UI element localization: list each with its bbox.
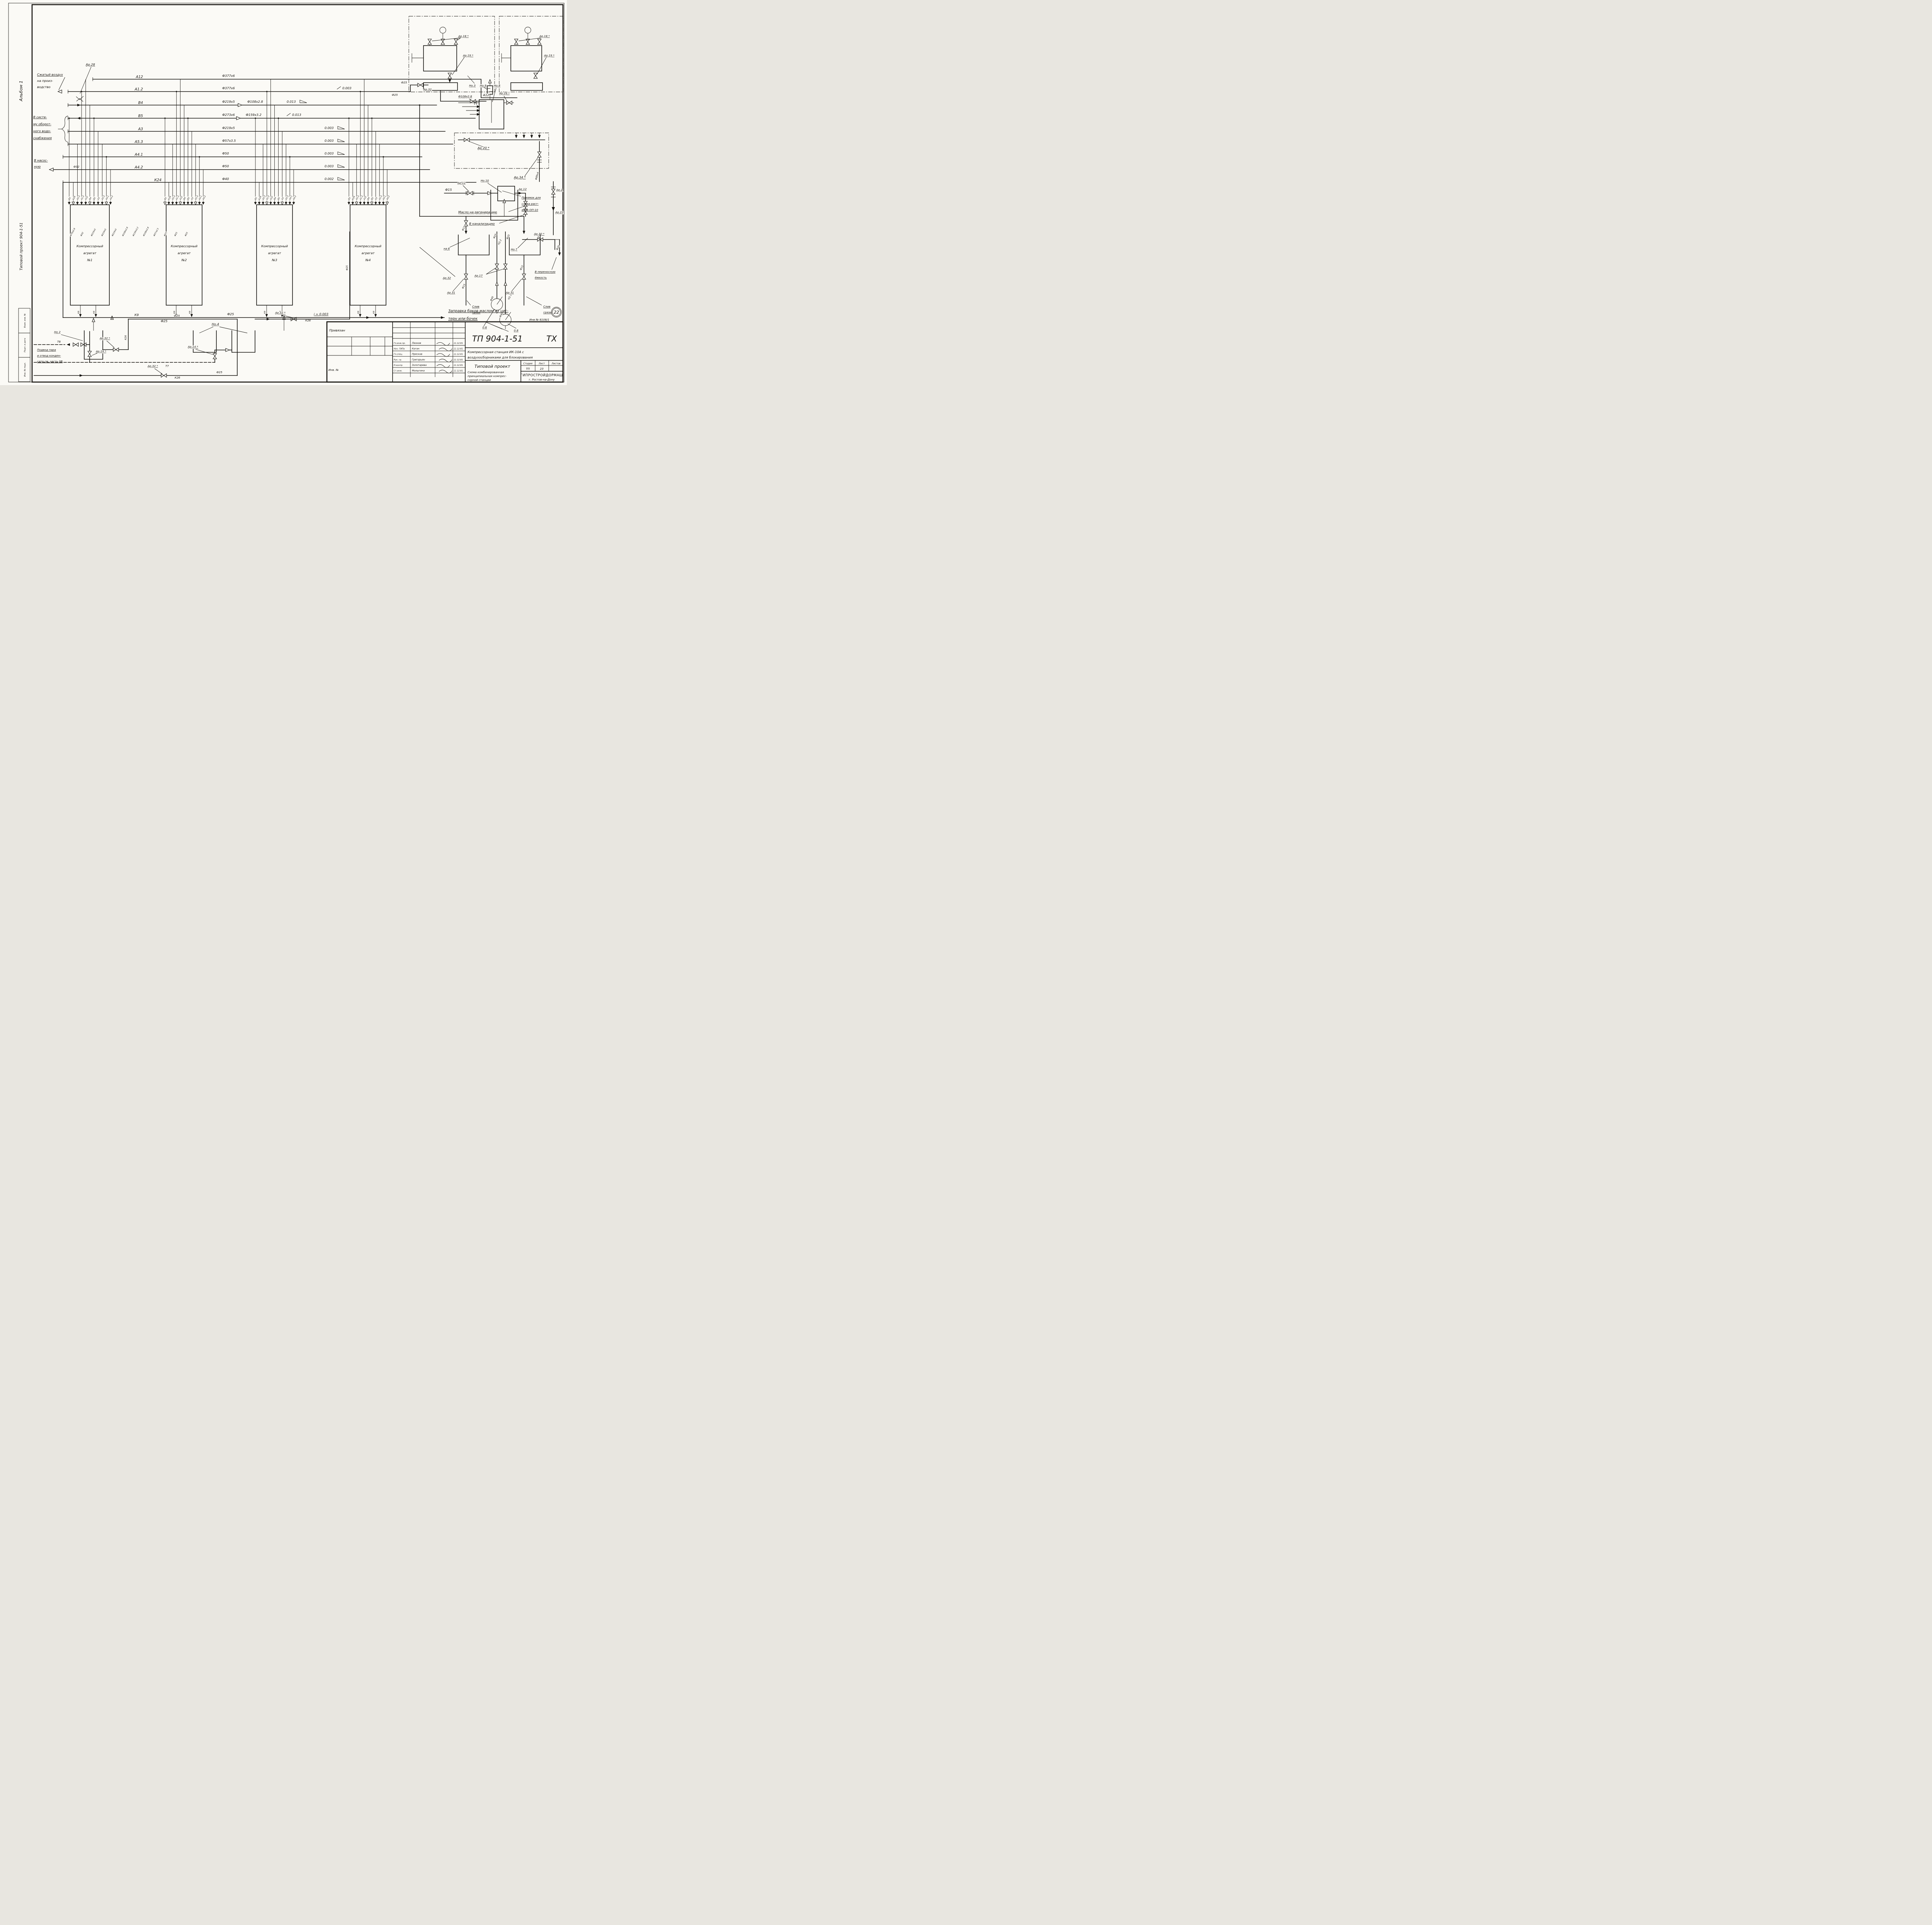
ar12b-label: Ар 12 [518,187,527,191]
flow-arrow [277,202,280,205]
pipe-dia: Ф50 [222,164,229,168]
k9-stub-label: К9 [93,311,95,314]
margin-stamp-label: Инв. № подл. [24,362,26,377]
detail-box-1: Ар.18 * Ар.19 * [409,16,495,103]
flow-arrow [190,314,193,317]
ar32-label: Ар.32 * [147,364,158,368]
flow-arrow-open [194,202,197,205]
drop-dia-label: Ф25 [184,231,189,236]
k9-label: К9 [134,313,139,317]
flow-arrow [378,202,381,205]
pipe-junction-dot [199,156,200,157]
ar19-label: Ар.19 * [463,54,473,57]
drop-tag-label: В5 [348,197,351,200]
k9-stub-label: К9 [264,311,266,314]
privyazan-label: Привязан [329,328,345,332]
signature-scribble [437,342,450,345]
flow-arrow [285,202,287,205]
pump-label: В насос- ную [34,158,49,168]
flow-arrow [79,314,82,317]
drop-dia-label: Ф76х2.8 [70,228,76,237]
drop-dia-label: Ф108х2.8 [143,226,150,237]
scheme-label: Схема комбинированная принципиальная ком… [468,370,507,382]
flow-arrow [281,314,283,317]
compressor-label: агрегат [83,251,97,255]
pipe-mid-dia: Ф159х3.2 [246,113,262,117]
drop-tag-label: А1.2 [266,195,270,201]
oil-level: 0.8 [483,326,487,329]
drop-tag-label: А3 [374,197,378,200]
drop-tag-label: А4.2 [386,195,391,201]
drop-tag-label: В4 [183,197,187,200]
sig-name: Коган [412,347,419,350]
sig-name: Леонов [412,342,421,345]
title-block: Привязан Инв. № Гл.инж.пр.Леонов11.12.81… [327,322,563,382]
drop-tag-label: К24 [72,195,77,200]
drop-tag-label: В5 [371,197,374,200]
margin-stamp-label: Взам. инв. № [24,313,26,328]
sig-name: Пресков [412,353,422,356]
flow-arrow [363,202,366,205]
f15-vert: Ф15 [461,226,466,231]
f25-vert: Ф25 [346,265,349,270]
flow-arrow [97,202,100,205]
compressor-label: Компрессорный [171,244,198,248]
ar32-label: Ар.32 [423,88,432,91]
ar14-label: Ар.14 * [187,345,198,348]
pipe-junction-dot [106,156,107,157]
oil-level: 0.8 [514,329,519,332]
k26-label: К26 [124,335,127,340]
n21-vert: Н2.1 [507,294,512,300]
reducer-symbol [76,96,83,102]
no7-label: Но.7 [511,248,517,251]
sheet-frame [9,3,564,382]
sig-date: 11.12.81 [454,370,463,372]
drop-tag-label: А4.2 [202,195,207,201]
org-city: г. Ростов-на-Дону [529,378,555,381]
pipe-tag: В4 [138,101,143,105]
compressor-label: №3 [272,258,277,262]
pipe-tag: В5 [138,114,143,118]
sig-role: Ст.инж. [394,370,402,372]
drop-dia-label: Ф219х5 [111,228,117,237]
type-label: Типовой проект [474,364,510,369]
flow-arrow [68,202,71,205]
sliv-label: Слив грязи [543,305,551,314]
drop-dia-label: Ф57х2.5 [153,228,159,237]
sheet-badge: 22 [554,310,559,315]
drop-tag-label: А1.2 [175,195,180,201]
water-label: В систе- му оборот- ного водо- снабжения [33,115,52,140]
flow-arrow [168,202,170,205]
flow-arrow [202,202,205,205]
drop-tag-label: А5.3 [101,195,106,201]
compressor-label: агрегат [268,251,281,255]
flow-arrow [76,202,79,205]
drop-dia-label: Ф32 [80,231,84,236]
ar19-label: Ар.19 * [544,54,554,57]
drop-tag-label: В5 [93,197,97,200]
flow-arrow [101,202,104,205]
ar34-label: Ар.34 * [514,175,526,179]
flow-arrow [171,202,174,205]
drawing-sheet: Альбом 1 Типовой проект 904-1-51 Взам. и… [0,0,567,385]
f32-label: Ф32 [73,165,80,168]
signature-scribble [439,348,452,351]
flow-arrow-open [371,202,373,205]
pipe-junction-dot [266,91,267,92]
pipe-tag: А4.1 [134,153,143,157]
drop-tag-label: А4.2 [109,195,114,201]
drop-tag-label: В5 [164,197,167,200]
drop-tag-label: А12 [270,195,274,201]
flow-arrow [359,314,361,317]
flow-arrow [273,202,276,205]
pipe-tag: А5.3 [134,140,143,144]
brace [61,116,68,142]
inv-cell-label: Инв. № [328,368,338,372]
flow-arrow [95,314,97,317]
flow-arrow-open [281,202,284,205]
flow-arrow [175,202,178,205]
na6-label: на 6 [444,247,450,250]
flow-arrow-open [179,202,182,205]
drop-tag-label: А3 [190,197,194,200]
drop-tag-label: А12 [179,195,184,201]
steam-note: Подвод пара и отвод конден- сата см. час… [37,348,63,363]
ar14-label: Ар.14 * [95,350,106,353]
sig-date: 11.12.81 [454,364,463,367]
compressor-label: №2 [181,258,187,262]
pipe-junction-dot [255,117,256,119]
project-code: ТП 904-1-51 [472,334,523,343]
ar17-label: Ар.17 [474,274,483,277]
flow-arrow-open [72,202,75,205]
stage-header: Листов [551,362,560,365]
drop-tag-label: А1.2 [80,195,85,201]
margin-stamp-label: Подп. и дата [24,338,26,352]
k9-stub-label: К9 [373,311,375,314]
drop-dia-label: Ф219х5 [90,228,97,237]
flow-arrow [289,202,291,205]
flow-arrow [80,202,83,205]
sig-role: Рук. гр. [394,359,402,361]
project-label: Типовой проект 904-1-51 [19,223,24,270]
f25-label: Ф25 [174,314,180,318]
sig-date: 11.12.81 [454,353,463,356]
f25-label: Ф25 [216,370,223,374]
drop-tag-label: В4 [367,197,371,200]
f15-vert: Ф15 [519,265,524,271]
pipe-mid-dia: Ф108х2.8 [247,100,263,104]
subject: Компрессорная станция ИК-10А с воздухосб… [468,350,533,359]
sig-name: Малыгина [412,370,425,372]
sig-name: Золотарева [412,364,427,367]
flow-arrow [84,202,87,205]
drop-diameter-labels: Ф76х2.8Ф32Ф219х5Ф219х5Ф219х5Ф108х2.8Ф159… [70,226,189,237]
flow-arrow [352,202,354,205]
ar32-mid-label: Ар.32 [442,276,451,280]
slope-marks: 0.003 0.013 0.013 0.003 0.003 0.003 0.00… [287,86,351,181]
drop-tag-label: А4.1 [105,195,110,201]
ar2-label: Ар.2 [556,188,563,192]
sig-role: Нач. ГИПа [394,348,405,350]
flow-arrow-open [355,202,358,205]
compressor-label: агрегат [362,251,375,255]
ar18-label: Ар.18 * [458,34,469,38]
flow-arrow [187,202,189,205]
pipe-tag: А3 [138,127,143,131]
kanal-label: В канализацию [469,222,495,226]
compressor-label: №1 [87,258,93,262]
pipe-junction-dot [360,91,361,92]
ar32-label: Ар.32 * [99,336,110,340]
drop-tag-label: В4 [274,197,277,200]
flow-arrow [374,202,377,205]
pipe-junction-dot [278,117,279,119]
pipe-junction-dot [383,156,384,157]
flow-arrow [262,202,264,205]
flow-arrow [93,202,95,205]
drop-tag-label: В4 [89,197,92,200]
right-bottom-zone: Ф15 Ар.32 на 6 Но.7 Ар.31 Ф15 Слив грязи… [419,104,561,332]
no4-label: Но.4 [212,322,219,326]
f89-label: Ф89х4 [535,172,539,180]
drop-dia-label: Ф159х3.2 [132,226,139,237]
a12-tag: А12 [483,93,489,97]
ar18-label: Ар.18 * [539,34,550,38]
flow-arrow [367,202,369,205]
pipe-junction-dot [68,117,70,119]
drop-tag-label: А3 [281,197,284,200]
stage-header: Лист [538,362,545,365]
flow-arrow [109,202,112,205]
f15-vert: Ф15 [461,284,466,289]
drop-tag-label: А5.3 [355,195,360,201]
emkost-label: В переносную ёмкость [535,270,556,279]
t7-label: Т7 [165,364,169,368]
drop-tag-label: А12 [363,195,367,201]
pipe-dia: Ф377х6 [222,74,235,78]
drop-tag-label: А5.3 [285,195,289,201]
ar30-label: Ар.30 * [534,232,544,236]
signature-scribble [437,365,450,368]
bottom-left-zone: Подвод пара и отвод конден- сата см. час… [34,232,350,379]
f25-label: Ф25 [161,319,167,323]
pipe-junction-dot [176,91,177,92]
f15-label: Ф15 [445,188,452,192]
drop-tag-label: А4.2 [293,195,297,201]
pipe-junction-dot [187,117,189,119]
drop-tag-label: К24 [168,195,172,200]
flow-arrow-open [386,202,389,205]
drop-tag-label: А5.3 [172,195,176,201]
detail-box-2: Ар.18 * Ар.19 * [499,16,563,92]
drop-tag-label: А5.3 [76,195,81,201]
compressor-label: Компрессорный [355,244,382,248]
compressor-label: Компрессорный [261,244,288,248]
k9-stub-label: К9 [173,311,176,314]
signature-scribble [439,370,452,373]
flow-arrow [374,314,377,317]
pipe-tag: К24 [154,178,162,182]
drop-tag-label: К24 [352,195,356,200]
drop-tag-label: А5.3 [262,195,267,201]
drop-tag-label: А12 [85,195,89,201]
schematic-canvas: Альбом 1 Типовой проект 904-1-51 Взам. и… [0,0,567,385]
oil-separator-zone: Но.3 Но.9 Но.8 Ар.29 * Ф108х2.8 А12 Ф25 … [392,76,563,250]
drop-dia-label: Ф25 [174,231,178,236]
stage-header: Стадия [523,362,532,365]
flow-arrow [269,202,272,205]
no8-label: Но.8 [494,84,500,87]
pipe-dia: Ф57х3.5 [222,139,236,143]
pipe-junction-dot [94,117,95,119]
f25-vert: Ф25 [506,234,510,240]
svg-text:0.013: 0.013 [287,100,296,104]
ar29-label: Ар.29 * [499,92,510,95]
pipe-dia: Ф377х6 [222,86,235,90]
flow-arrow [190,202,193,205]
no3-label: Но.3 [469,84,476,87]
f25-label: Ф25 [227,312,234,316]
compressor-units: Компрессорныйагрегат№1Компрессорныйагрег… [70,205,386,305]
flow-arrow [265,314,268,317]
svg-text:0.003: 0.003 [325,164,333,168]
ar12-label: Ар.12 [457,181,466,185]
pipe-dia: Ф50 [222,151,229,155]
sig-role: Гл.инж.пр. [394,342,405,345]
flow-arrow [348,202,350,205]
signature-scribble [439,359,452,362]
k9-stub-label: К9 [78,311,80,314]
no9-label: Но.9 [480,84,486,87]
no10-label: Но.10 [481,179,489,182]
pipe-dia: Ф273х6 [222,113,235,117]
compressor-label: №4 [365,258,371,262]
album-label: Альбом 1 [19,81,24,102]
sig-role: Гл.спец. [394,353,403,356]
pipe-junction-dot [348,117,349,119]
flow-arrow [198,202,201,205]
drop-tag-label: А4.1 [289,195,293,201]
margin-column: Альбом 1 Типовой проект 904-1-51 Взам. и… [19,81,30,382]
sig-date: 11.12.81 [454,342,463,345]
f40-vert: Ф40 [490,296,494,302]
sig-date: 11.12.81 [454,348,463,350]
signature-scribble [437,353,450,357]
sig-date: 11.12.81 [454,359,463,361]
svg-text:0.013: 0.013 [292,113,301,117]
doc-code: ТХ [546,334,557,343]
f25-label: Ф25 [392,93,398,97]
flow-arrow [359,202,362,205]
pipe-dia: Ф219х5 [222,100,235,104]
pipe-junction-dot [371,117,372,119]
flow-arrow [183,202,185,205]
pipe-junction-dot [164,117,165,119]
drop-tag-label: К24 [258,195,262,200]
sig-role: Н.контр. [394,364,403,367]
drop-tag-label: А3 [97,197,100,200]
drop-dia-label: Ф25 [163,231,168,236]
svg-text:0.002: 0.002 [325,177,333,181]
k9-stub-label: К9 [357,311,360,314]
stage-value: 23 [540,367,544,370]
pipe-tag: А4.2 [134,165,143,170]
maslo-label: Масло на регенерацию [458,210,497,214]
pipe-dia: Ф40 [222,177,229,181]
drop-tag-label: А5.3 [194,195,199,201]
pipe-tag: А1.2 [134,87,143,92]
org-name: ГИПРОСТРОЙДОРМАШ [520,373,563,377]
drop-tag-label: А4.1 [198,195,203,201]
pipe-dia: Ф219х5 [222,126,235,130]
f25-label: Ф25 [401,81,407,84]
k9-stub-label: К9 [189,311,191,314]
flow-arrow [293,202,295,205]
t8-label: Т8 [57,340,61,343]
svg-text:0.003: 0.003 [325,126,333,130]
no2-label: Но 2 [54,330,61,334]
n22-vert: Н2.2 [497,239,502,245]
pipe-junction-dot [289,156,290,157]
drop-tag-label: А4.1 [382,195,387,201]
drop-tag-label: В5 [277,197,281,200]
drop-tag-label: В5 [254,197,258,200]
pipe-junction-dot [81,91,82,92]
air-label: Сжатый воздух на произ- водство [37,73,64,89]
drop-tag-label: А1.2 [359,195,364,201]
inv-note: Инв № 8108/1 [529,318,549,321]
stage-value: ТП [526,367,530,370]
compressor-label: агрегат [178,251,191,255]
flow-arrow [382,202,385,205]
pipe-tag: А12 [136,75,143,79]
flow-arrow-open [265,202,268,205]
flow-arrow-open [105,202,108,205]
compressor-label: Компрессорный [77,244,104,248]
ar21-label: Ар.21 [555,211,563,214]
drop-tag-label: В5 [68,197,71,200]
svg-text:0.003: 0.003 [325,151,333,155]
flow-arrow-open [88,202,91,205]
pit-label: Приямок для слива раст- вора ОП-10 [522,196,542,212]
k26-label: К26 [175,376,180,379]
svg-text:0.003: 0.003 [342,86,351,90]
drop-tag-label: В5 [187,197,190,200]
ar28-label: Ар.28 [85,63,95,66]
slope-label: i = 0.003 [314,312,328,316]
svg-text:0.003: 0.003 [325,139,333,143]
ar31-label: Ар.31 [447,291,455,294]
flow-arrow [258,202,261,205]
ar20-label: Ар 20 * [477,146,490,150]
sig-name: Григорьян [412,358,425,361]
flow-arrow [254,202,257,205]
drop-tag-label: А5.3 [378,195,383,201]
drop-dia-label: Ф108х2.8 [122,226,129,237]
f108-label: Ф108х2.8 [458,95,472,98]
flow-arrow-open [164,202,167,205]
drop-dia-label: Ф219х5 [101,228,107,237]
ar32-label: Ар.32 * [275,311,286,314]
